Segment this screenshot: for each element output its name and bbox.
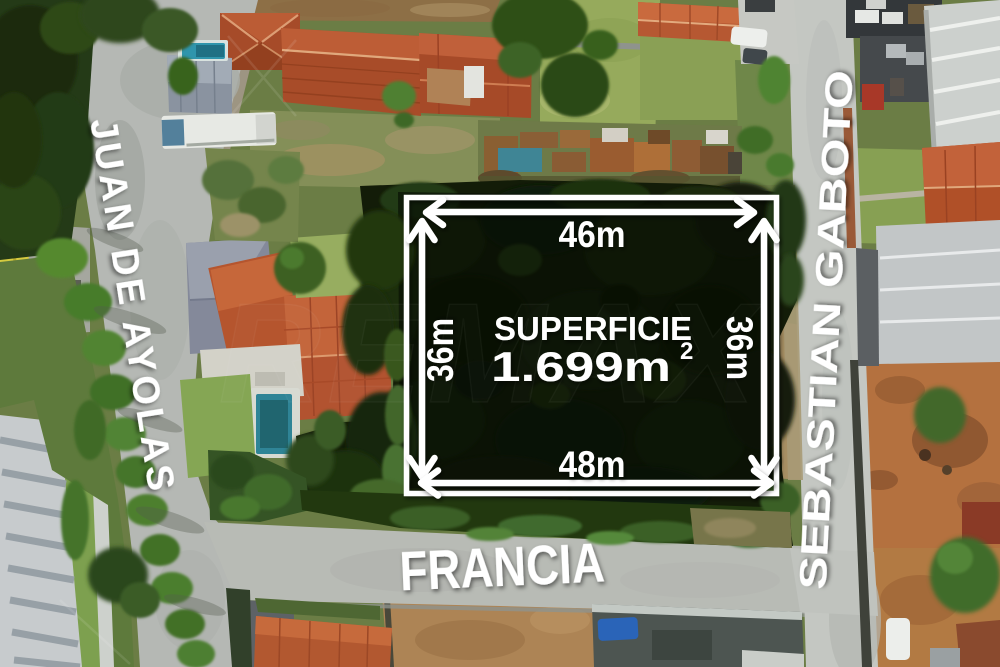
- svg-text:FRANCIA: FRANCIA: [398, 531, 606, 603]
- svg-text:1.699m: 1.699m: [491, 343, 671, 390]
- svg-text:36m: 36m: [719, 316, 760, 380]
- svg-text:36m: 36m: [420, 318, 461, 382]
- svg-text:48m: 48m: [559, 444, 626, 485]
- svg-text:2: 2: [680, 338, 693, 365]
- svg-text:SUPERFICIE: SUPERFICIE: [494, 310, 692, 347]
- svg-text:46m: 46m: [559, 214, 626, 255]
